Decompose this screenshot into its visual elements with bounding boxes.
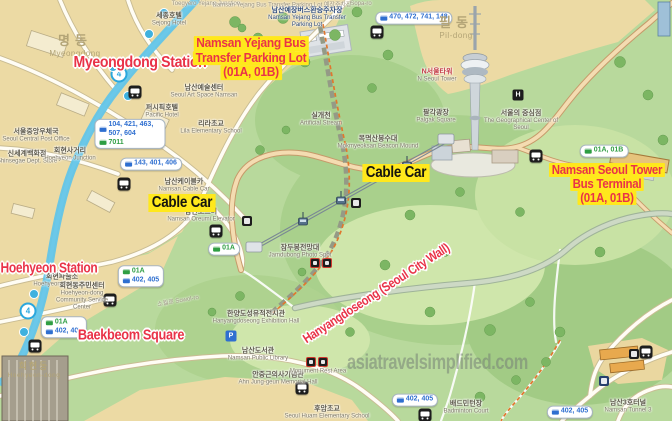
blue-bus-routes: 402, 405	[397, 396, 433, 405]
bus-icon	[397, 398, 404, 403]
bus-icon	[125, 162, 132, 167]
poi-jamdubong: 잠두봉전망대Jamdubong Photo Spot	[269, 245, 332, 260]
label-line: Namsan Yejang Bus	[194, 36, 309, 51]
bus-stop-icon	[210, 225, 223, 238]
district-en: Hoehyeon-dong	[8, 372, 61, 379]
metro-exit-dot	[19, 327, 29, 337]
blue-bus-routes: 402, 405	[46, 327, 82, 336]
bus-routes-bubble-south: 402, 405	[392, 394, 438, 407]
district-en: Pil-dong	[439, 31, 473, 40]
facility-icon	[318, 357, 328, 367]
facility-icon	[310, 258, 320, 268]
poi-community-center: 회현동주민센터Hoehyeon-dong Community Service C…	[50, 283, 114, 312]
district-ko: 필동	[439, 12, 473, 31]
bus-routes-bubble-terminal: 01A, 01B	[580, 145, 629, 158]
bus-icon	[123, 278, 130, 283]
poi-post-office: 서울중앙우체국Seoul Central Post Office	[2, 129, 69, 144]
metro-exit-dot	[29, 289, 39, 299]
poi-wall-hall: 한양도성유적전시관Hanyangdoseong Exhibition Hall	[213, 311, 300, 326]
bus-stop-icon	[640, 346, 653, 359]
map-canvas[interactable]: 4 4 H P 104, 421, 463, 507, 604 7011 143…	[0, 0, 672, 421]
bus-icon	[100, 127, 107, 132]
bus-icon	[46, 320, 53, 325]
bus-routes-bubble-oreumi: 01A	[208, 243, 240, 256]
poi-pacific-hotel: 퍼시픽호텔Pacific Hotel	[145, 105, 178, 120]
bus-routes-bubble-hoehyeon-1: 01A 402, 405	[118, 265, 164, 287]
helipad-icon: H	[513, 90, 524, 101]
school-icon	[599, 376, 609, 386]
poi-monument-rest: Monument Rest Area	[290, 369, 346, 376]
district-ko: 명동	[49, 30, 100, 49]
label-baekbeom-square: Baekbeom Square	[78, 327, 184, 344]
label-myeongdong-station: Myeongdong Station	[74, 54, 207, 72]
amenity-icon	[242, 216, 252, 226]
poi-badminton: 배드민턴장Badminton Court	[443, 401, 488, 416]
bus-icon	[552, 410, 559, 415]
facility-icon	[306, 357, 316, 367]
green-bus-routes: 01A, 01B	[585, 147, 624, 156]
green-bus-routes: 01A	[46, 318, 82, 327]
green-bus-routes: 7011	[100, 138, 161, 147]
parking-icon: P	[226, 331, 237, 342]
amenity-icon	[629, 349, 639, 359]
street-label-parking: Namsan Yejang Bus Transfer Parking Lot 예…	[213, 0, 352, 9]
poi-artificial-stream: 실개천Artificial Stream	[300, 113, 342, 128]
bus-icon	[123, 269, 130, 274]
label-cable-car-west: Cable Car	[148, 194, 215, 212]
bus-icon	[46, 329, 53, 334]
bus-stop-icon	[419, 409, 432, 421]
poi-hoehyeon-junction: 회현사거리Hoehyeon Junction	[44, 148, 95, 163]
poi-tunnel3: 남산3호터널Namsan Tunnel 3	[604, 400, 651, 415]
poi-geographical-center: 서울의 중심점The Geographical Center of Seoul	[482, 110, 560, 132]
bus-stop-icon	[29, 340, 42, 353]
poi-huam-school: 후암초교Seoul Huam Elementary School	[284, 406, 369, 421]
blue-bus-routes: 402, 405	[552, 408, 588, 417]
district-ko: 회현동	[8, 359, 61, 372]
label-line: (01A, 01B)	[220, 65, 281, 80]
amenity-icon	[351, 198, 361, 208]
poi-cablecar-station: 남산케이블카Namsan Cable Car	[158, 179, 209, 194]
bus-icon	[585, 149, 592, 154]
poi-n-seoul-tower: N서울타워N Seoul Tower	[418, 69, 457, 84]
bus-stop-icon	[118, 178, 131, 191]
cablecar-station-icon	[530, 150, 543, 163]
label-line: Bus Terminal	[570, 177, 644, 191]
poi-palgak-square: 팔각광장Palgak Square	[416, 110, 455, 125]
bus-routes-bubble-southeast: 402, 405	[547, 406, 593, 419]
bus-stop-icon	[371, 26, 384, 39]
blue-bus-routes: 470, 472, 741, 148	[380, 14, 447, 23]
green-bus-routes: 01A	[123, 267, 159, 276]
district-label-pildong: 필동 Pil-dong	[439, 12, 473, 40]
street-label-sopa-ro: Sopa-ro	[350, 1, 371, 7]
poi-beacon-mound: 목멱산봉수대Mokmyeoksan Beacon Mound	[338, 136, 419, 151]
bus-routes-bubble-myeongdong: 104, 421, 463, 507, 604 7011	[95, 119, 166, 149]
poi-yejang-lot: 남산예장버스환승주차장Namsan Yejang Bus Transfer Pa…	[261, 7, 353, 29]
label-yejang-parking: Namsan Yejang Bus Transfer Parking Lot (…	[193, 36, 309, 80]
green-bus-routes: 01A	[213, 245, 235, 254]
bus-icon	[380, 16, 387, 21]
bus-routes-bubble-cablecar: 143, 401, 406	[120, 158, 182, 171]
bus-stop-icon	[129, 86, 142, 99]
label-tower-terminal: Namsan Seoul Tower Bus Terminal (01A, 01…	[549, 163, 665, 205]
metro-exit-dot	[144, 29, 154, 39]
label-hoehyeon-station: Hoehyeon Station	[1, 260, 98, 277]
poi-sejong-hotel: 세종호텔Sejong Hotel	[152, 13, 186, 28]
blue-bus-routes: 104, 421, 463, 507, 604	[100, 121, 161, 139]
poi-art-space: 남산예술센터Seoul Art Space Namsan	[170, 85, 237, 100]
label-line: Namsan Seoul Tower	[549, 163, 665, 177]
poi-lila-school: 리라초교Lila Elementary School	[180, 121, 241, 136]
district-label-hoehyeondong: 회현동 Hoehyeon-dong	[8, 359, 61, 379]
metro-line4-station-badge-hoehyeon: 4	[20, 303, 37, 320]
bus-icon	[100, 140, 107, 145]
blue-bus-routes: 402, 405	[123, 276, 159, 285]
label-line: Transfer Parking Lot	[193, 51, 309, 66]
label-line: (01A, 01B)	[577, 191, 636, 205]
facility-icon	[322, 258, 332, 268]
poi-namsan-library: 남산도서관Namsan Public Library	[228, 348, 288, 363]
watermark: asiatravelsimplified.com	[347, 351, 528, 375]
blue-bus-routes: 143, 401, 406	[125, 160, 177, 169]
label-cable-car-summit: Cable Car	[362, 164, 429, 182]
bus-icon	[213, 247, 220, 252]
